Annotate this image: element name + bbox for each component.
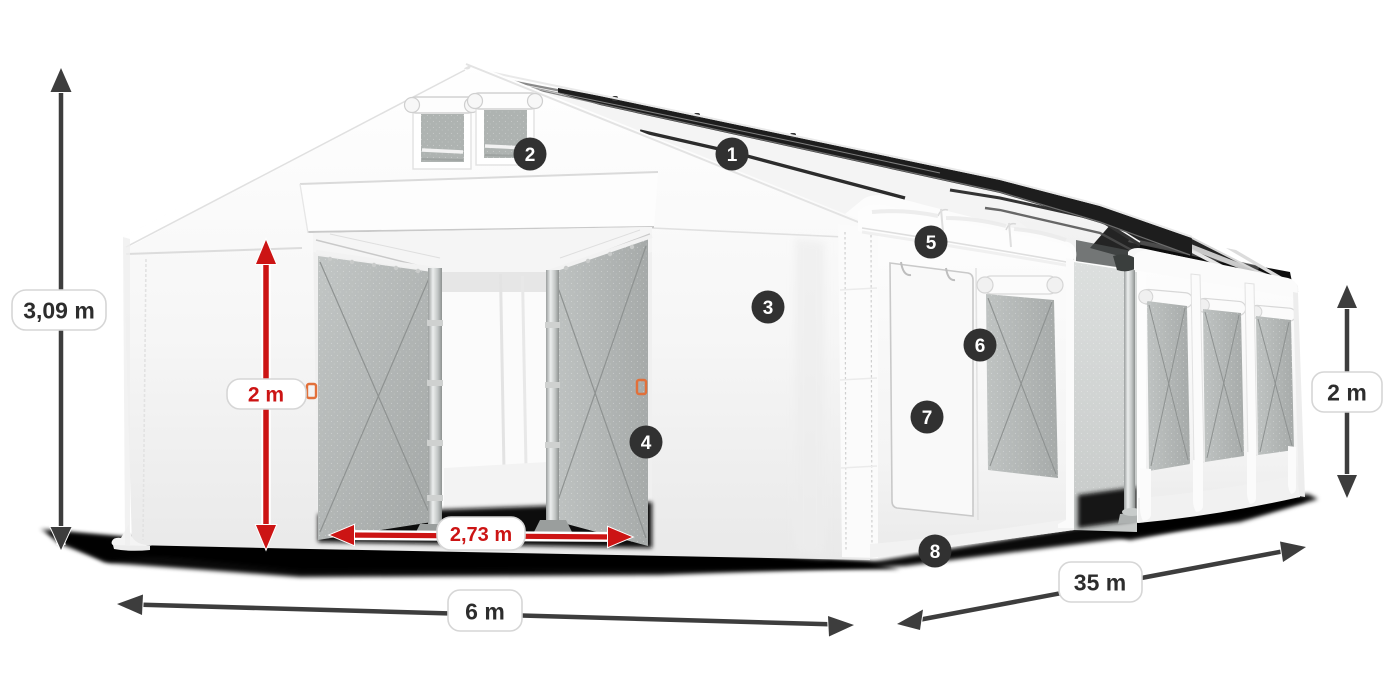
svg-text:8: 8 bbox=[930, 542, 941, 563]
svg-text:3: 3 bbox=[763, 298, 774, 319]
svg-text:3,09 m: 3,09 m bbox=[23, 298, 95, 324]
svg-text:2: 2 bbox=[525, 145, 536, 166]
svg-text:2 m: 2 m bbox=[248, 384, 284, 407]
svg-text:5: 5 bbox=[926, 233, 937, 254]
svg-text:1: 1 bbox=[727, 145, 738, 166]
svg-text:35 m: 35 m bbox=[1074, 570, 1126, 596]
svg-text:2,73 m: 2,73 m bbox=[450, 524, 512, 546]
svg-text:4: 4 bbox=[641, 433, 652, 454]
svg-text:6: 6 bbox=[975, 336, 986, 357]
svg-text:7: 7 bbox=[922, 408, 933, 429]
svg-text:2 m: 2 m bbox=[1327, 380, 1367, 406]
svg-text:6 m: 6 m bbox=[465, 599, 505, 625]
